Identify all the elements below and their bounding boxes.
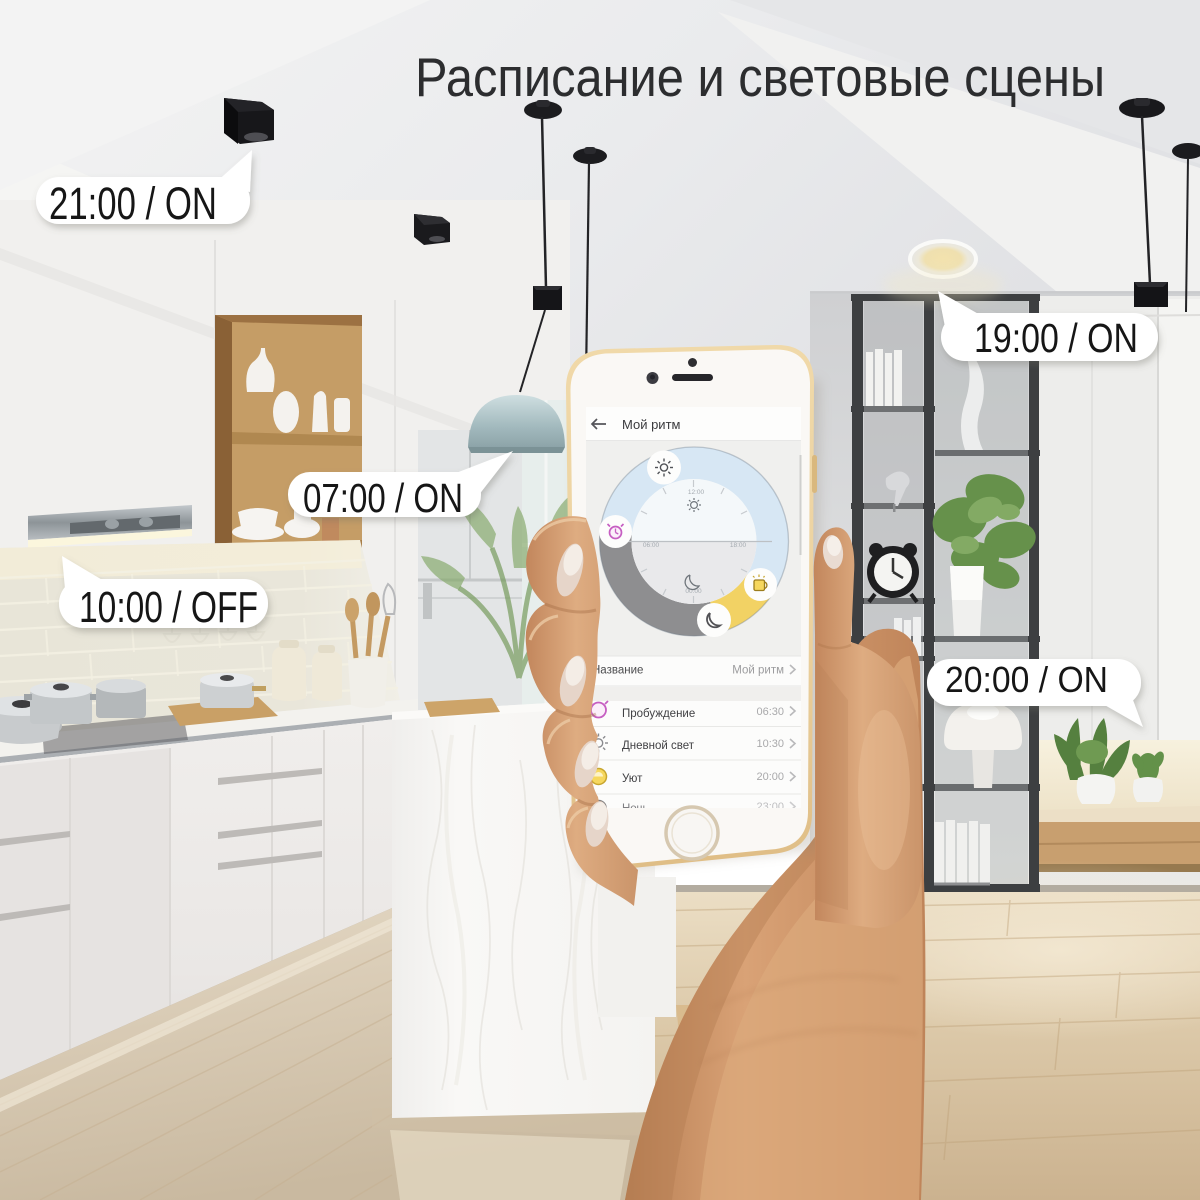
svg-text:Мой ритм: Мой ритм — [622, 417, 681, 432]
svg-text:06:30: 06:30 — [756, 706, 784, 718]
svg-text:06:00: 06:00 — [643, 542, 660, 549]
svg-text:19:00 / ON: 19:00 / ON — [974, 315, 1138, 361]
svg-text:Уют: Уют — [622, 773, 643, 785]
svg-text:Дневной свет: Дневной свет — [622, 740, 695, 752]
svg-text:10:30: 10:30 — [756, 738, 784, 750]
svg-text:Пробуждение: Пробуждение — [622, 708, 695, 720]
svg-text:18:00: 18:00 — [730, 542, 747, 549]
svg-text:20:00 / ON: 20:00 / ON — [945, 659, 1108, 700]
svg-text:10:00 / OFF: 10:00 / OFF — [79, 583, 258, 632]
svg-text:12:00: 12:00 — [688, 489, 705, 496]
svg-text:07:00 / ON: 07:00 / ON — [303, 475, 463, 521]
svg-text:Название: Название — [592, 665, 643, 677]
svg-text:Мой ритм: Мой ритм — [732, 665, 784, 677]
svg-text:21:00 / ON: 21:00 / ON — [49, 178, 217, 229]
svg-text:Расписание и световые сцены: Расписание и световые сцены — [415, 46, 1105, 108]
svg-text:20:00: 20:00 — [756, 771, 784, 783]
